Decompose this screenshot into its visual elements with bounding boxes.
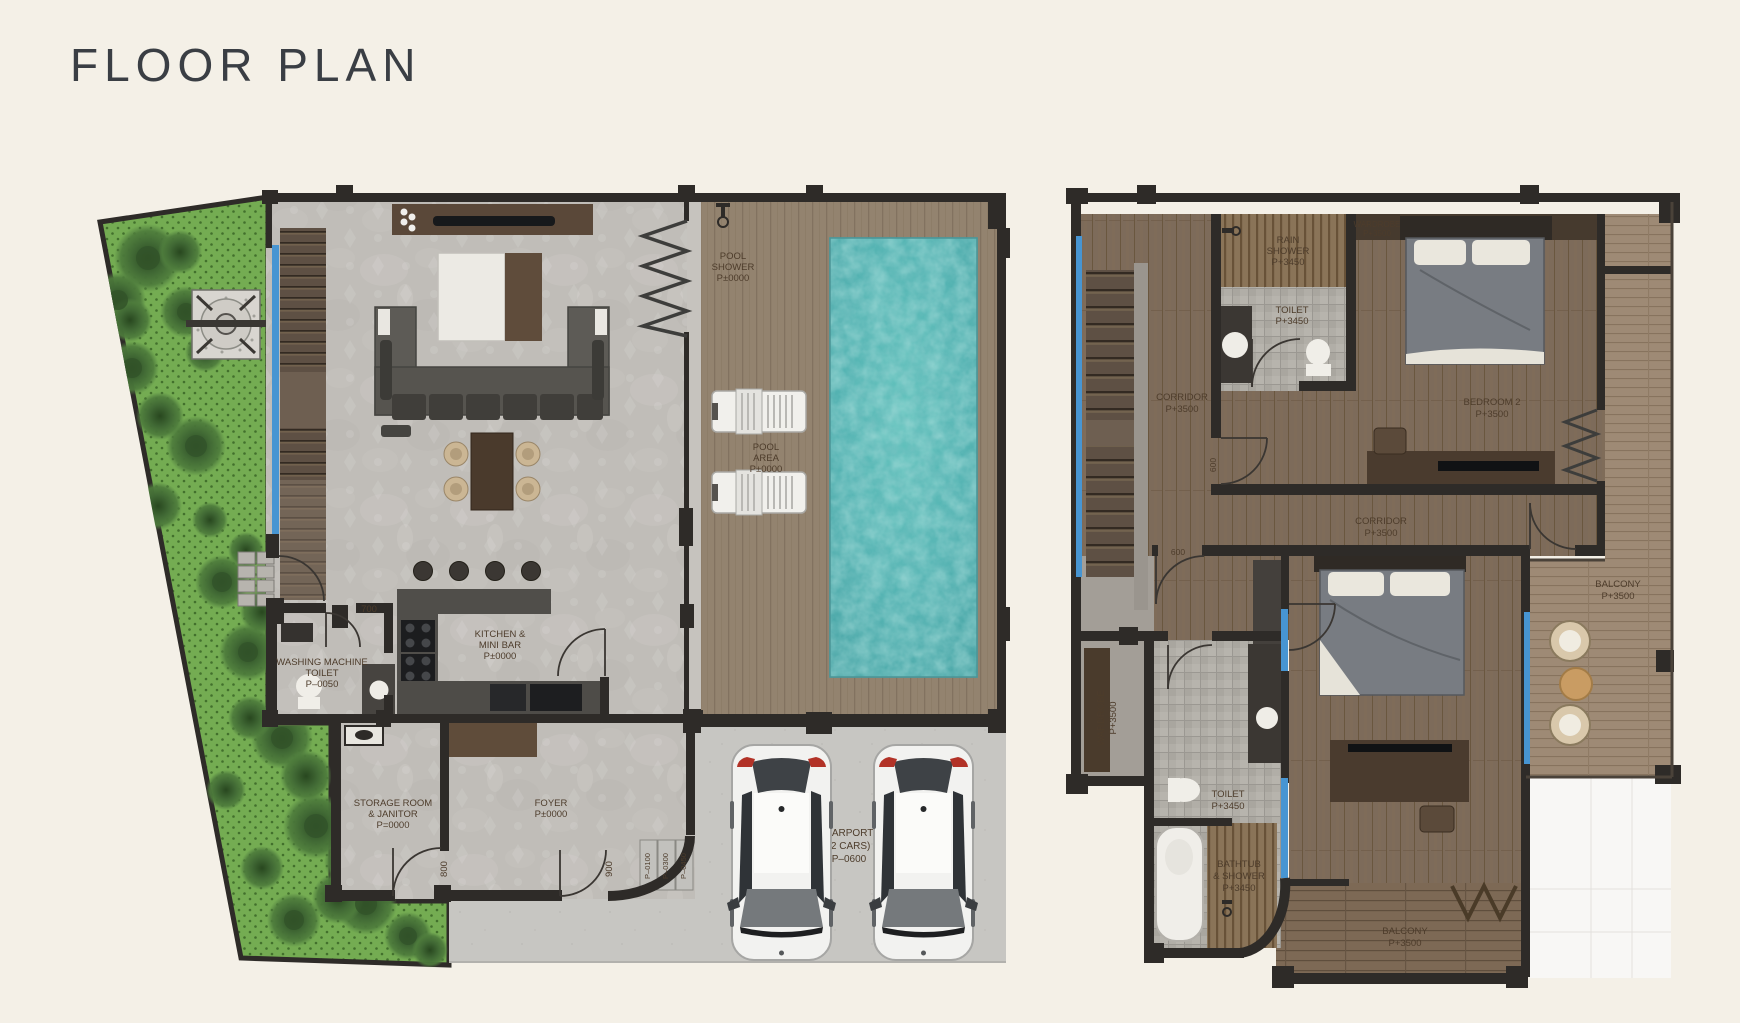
svg-text:P+3500: P+3500	[1601, 591, 1634, 602]
svg-text:WASHING MACHINE: WASHING MACHINE	[276, 657, 367, 668]
svg-text:TOILET: TOILET	[1211, 789, 1244, 800]
svg-text:P±0000: P±0000	[484, 651, 517, 662]
svg-text:P–0050: P–0050	[306, 679, 339, 690]
svg-text:FOYER: FOYER	[535, 798, 568, 809]
svg-text:P+3450: P+3450	[1271, 257, 1304, 268]
svg-text:P±0000: P±0000	[750, 464, 783, 475]
svg-text:700: 700	[361, 604, 377, 615]
svg-text:BEDROOM 2: BEDROOM 2	[1463, 397, 1520, 408]
svg-text:SHOWER: SHOWER	[712, 262, 755, 273]
svg-text:STORAGE ROOM: STORAGE ROOM	[354, 798, 433, 809]
svg-text:P+3500: P+3500	[1388, 938, 1421, 949]
svg-text:KITCHEN &: KITCHEN &	[475, 629, 526, 640]
svg-text:RAIN: RAIN	[1277, 235, 1300, 246]
svg-text:P–0100: P–0100	[643, 853, 652, 879]
svg-text:& SHOWER: & SHOWER	[1213, 871, 1265, 882]
svg-text:BALCONY: BALCONY	[1382, 926, 1428, 937]
svg-text:P+3500: P+3500	[1363, 229, 1391, 238]
svg-text:AREA: AREA	[753, 453, 780, 464]
svg-text:P+3450: P+3450	[1222, 883, 1255, 894]
svg-text:P+3500: P+3500	[1108, 701, 1119, 734]
svg-text:P+3500: P+3500	[1364, 528, 1397, 539]
svg-text:P–0600: P–0600	[832, 854, 867, 865]
svg-text:800: 800	[439, 861, 450, 877]
svg-text:BATHTUB: BATHTUB	[1217, 859, 1261, 870]
svg-text:POOL: POOL	[753, 442, 779, 453]
svg-text:FLOOR PLAN: FLOOR PLAN	[70, 39, 421, 91]
svg-text:600: 600	[1171, 547, 1185, 557]
svg-text:P=0000: P=0000	[376, 820, 409, 831]
svg-text:WARDROBE: WARDROBE	[1096, 690, 1107, 746]
svg-text:P±0000: P±0000	[535, 809, 568, 820]
svg-text:900: 900	[604, 861, 615, 877]
svg-text:POOL: POOL	[720, 251, 746, 262]
svg-text:CORRIDOR: CORRIDOR	[1156, 392, 1208, 403]
svg-text:P+3450: P+3450	[1211, 801, 1244, 812]
svg-text:P+3450: P+3450	[1275, 316, 1308, 327]
svg-text:600: 600	[1208, 458, 1218, 472]
svg-text:P+3500: P+3500	[1475, 409, 1508, 420]
svg-text:BALCONY: BALCONY	[1595, 579, 1641, 590]
svg-text:WARDROBE: WARDROBE	[1354, 220, 1401, 229]
svg-text:TOILET: TOILET	[1275, 305, 1308, 316]
svg-text:SHOWER: SHOWER	[1267, 246, 1310, 257]
svg-text:P–0450: P–0450	[679, 853, 688, 879]
svg-text:P±0000: P±0000	[717, 273, 750, 284]
svg-text:P–0300: P–0300	[661, 853, 670, 879]
svg-text:CORRIDOR: CORRIDOR	[1355, 516, 1407, 527]
svg-text:TOILET: TOILET	[305, 668, 338, 679]
svg-text:(2 CARS): (2 CARS)	[828, 841, 871, 852]
svg-text:& JANITOR: & JANITOR	[368, 809, 418, 820]
svg-text:MINI BAR: MINI BAR	[479, 640, 521, 651]
svg-text:P+3500: P+3500	[1165, 404, 1198, 415]
